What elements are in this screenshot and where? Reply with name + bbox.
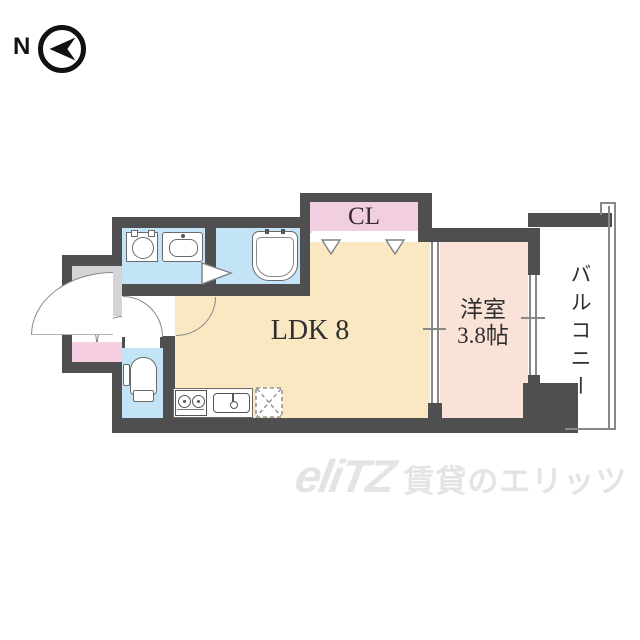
wall: [528, 213, 612, 227]
wall: [112, 418, 578, 433]
closet-door-arrows-icon: [312, 239, 418, 257]
watermark-logo: eliTZ: [291, 449, 398, 503]
washer-tap: [148, 230, 155, 237]
balcony-rail: [608, 206, 610, 430]
western-room-size: 3.8帖: [438, 323, 528, 349]
balcony-rail: [614, 202, 616, 430]
vanity-bowl: [169, 239, 198, 257]
washing-machine-pan-icon: [126, 232, 158, 262]
toilet-cistern: [123, 364, 130, 386]
ldk-label: LDK 8: [245, 315, 375, 347]
washer-tap: [131, 230, 138, 237]
toilet-icon: [122, 352, 163, 416]
kitchen-faucet: [232, 393, 234, 402]
vanity-faucet: [181, 234, 185, 238]
bath-door-arrow-icon: [201, 262, 233, 285]
window-line: [535, 275, 537, 375]
tub-faucet: [265, 229, 269, 234]
sliding-door-line: [431, 242, 433, 403]
balcony-rail: [600, 202, 616, 204]
balcony-label: バルコニー: [558, 235, 592, 430]
vanity-sink-icon: [162, 232, 203, 262]
wall: [418, 228, 540, 242]
floor-plan-image: N 玄: [0, 0, 640, 640]
stove-burner: [192, 395, 205, 408]
wall: [163, 284, 175, 296]
closet-label: CL: [310, 203, 418, 232]
stove-burner: [178, 395, 191, 408]
washer-drum: [132, 237, 154, 259]
wall: [112, 284, 310, 296]
tub-faucet: [281, 229, 285, 234]
floor-plan: 玄: [0, 0, 640, 640]
stove-front: [177, 409, 204, 414]
western-room-label: 洋室 3.8帖: [438, 297, 528, 350]
wall: [160, 337, 175, 348]
watermark-text: 賃貸のエリッツ: [403, 456, 627, 501]
western-room-name: 洋室: [438, 297, 528, 323]
entrance-accent: [72, 342, 122, 362]
gas-stove-icon: [175, 390, 207, 416]
wall: [300, 193, 310, 296]
kitchen-sink-icon: [213, 393, 250, 413]
watermark: eliTZ 賃貸のエリッツ: [296, 449, 627, 503]
toilet-door-arc: [123, 296, 163, 337]
bathtub-icon: [252, 231, 298, 281]
wall: [112, 217, 310, 228]
balcony-rail: [600, 202, 602, 215]
wall: [300, 193, 428, 202]
window-line: [529, 275, 531, 375]
wall: [428, 403, 442, 418]
refrigerator-space-icon: [255, 387, 283, 418]
kitchen-counter: [173, 388, 253, 418]
bathtub-inner: [256, 237, 294, 277]
entrance-door-arc: [31, 272, 113, 335]
wall: [528, 242, 540, 275]
toilet-tank: [133, 390, 154, 402]
